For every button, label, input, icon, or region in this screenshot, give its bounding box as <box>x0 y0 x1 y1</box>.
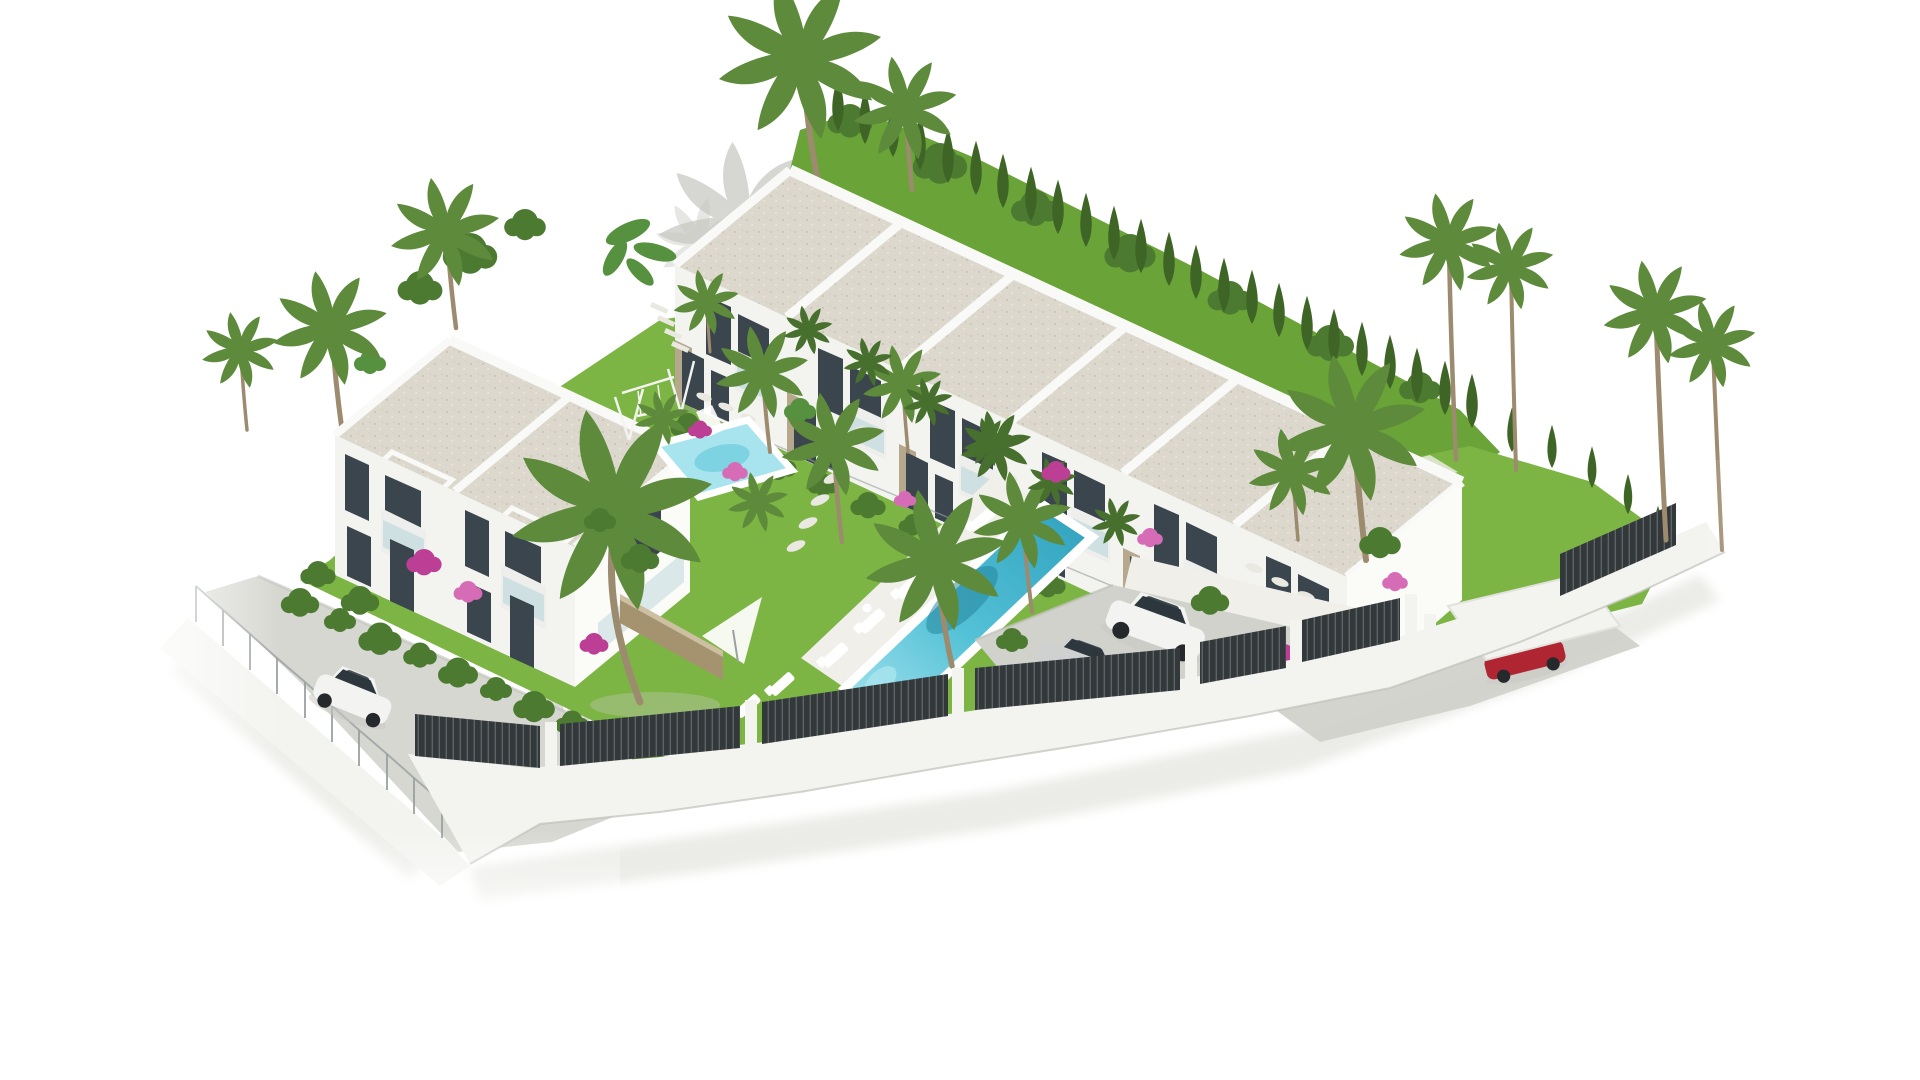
fade-right <box>1700 460 1880 680</box>
fade-left <box>120 520 280 780</box>
fence-pillar <box>952 668 964 718</box>
fence-pillar <box>1185 642 1197 692</box>
fade-bottom-left <box>360 830 620 950</box>
fence-pillar <box>545 722 557 772</box>
fence-pillar <box>1405 594 1417 644</box>
fence-pillar <box>745 700 757 750</box>
render-canvas: Aerial 3D render of a new residential de… <box>0 0 1920 1080</box>
fence-pillar <box>1290 620 1302 670</box>
architectural-render: Aerial 3D render of a new residential de… <box>0 0 1920 1080</box>
side-table <box>863 604 872 613</box>
